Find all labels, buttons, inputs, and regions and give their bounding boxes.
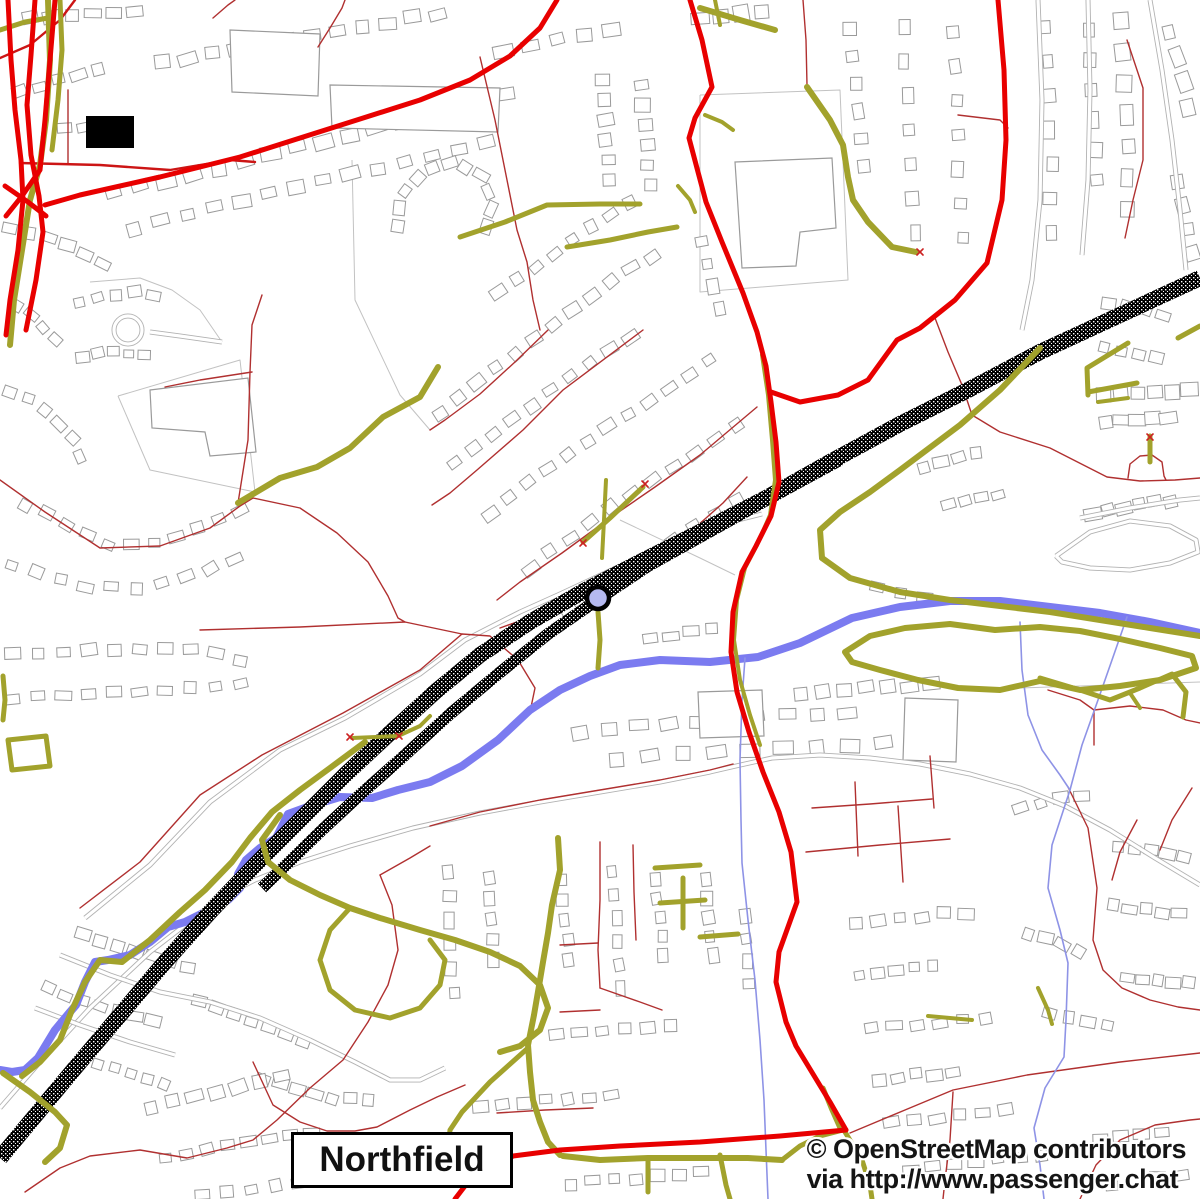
building — [145, 290, 161, 302]
building — [1159, 411, 1178, 425]
building — [286, 179, 305, 196]
building — [1182, 976, 1196, 989]
building — [1043, 55, 1053, 69]
building — [598, 93, 611, 107]
building — [608, 889, 618, 901]
building — [1101, 1020, 1114, 1032]
building — [945, 1067, 961, 1078]
building — [110, 290, 122, 302]
building — [391, 219, 405, 233]
building — [629, 719, 649, 731]
building — [126, 222, 142, 238]
building — [902, 87, 914, 103]
building — [642, 633, 658, 644]
building — [954, 198, 966, 209]
building — [1154, 907, 1170, 920]
building — [1043, 88, 1056, 103]
building — [629, 1174, 643, 1186]
building — [108, 644, 122, 656]
building — [220, 1185, 234, 1198]
building — [138, 350, 151, 360]
building — [141, 1073, 154, 1086]
building — [244, 1184, 258, 1195]
building — [403, 9, 421, 24]
building — [154, 54, 171, 69]
building — [701, 910, 715, 925]
building — [890, 1072, 905, 1084]
building — [974, 491, 989, 502]
building — [449, 987, 460, 998]
building — [928, 960, 938, 971]
building — [1128, 414, 1145, 425]
building — [81, 689, 96, 700]
building — [106, 686, 122, 697]
building — [886, 1021, 903, 1030]
attribution-line2: via http://www.passenger.chat — [807, 1164, 1186, 1194]
building — [183, 644, 198, 655]
building — [1074, 791, 1090, 802]
building — [1113, 415, 1131, 425]
building — [1063, 1011, 1074, 1025]
building — [814, 684, 830, 700]
building — [1107, 898, 1119, 911]
building — [672, 1169, 686, 1181]
building — [603, 174, 616, 186]
building — [1121, 904, 1138, 915]
map-attribution: © OpenStreetMap contributors via http://… — [807, 1134, 1186, 1194]
building — [106, 7, 122, 18]
building — [909, 962, 920, 971]
building — [1120, 104, 1134, 125]
building — [601, 22, 621, 38]
building — [1113, 12, 1129, 30]
building — [958, 908, 975, 920]
building — [693, 1166, 709, 1176]
building — [598, 133, 612, 147]
building — [640, 748, 660, 763]
building — [905, 191, 919, 206]
building — [975, 1108, 990, 1118]
building — [634, 98, 650, 112]
building — [837, 707, 857, 720]
building — [233, 655, 247, 668]
building — [641, 160, 654, 170]
building — [658, 930, 667, 942]
building — [442, 865, 454, 880]
building — [1090, 174, 1103, 186]
building — [613, 958, 625, 972]
building — [55, 573, 68, 585]
building — [1098, 341, 1110, 353]
building — [951, 95, 962, 107]
building — [565, 1180, 576, 1191]
building — [662, 631, 680, 641]
building — [1136, 975, 1150, 985]
building — [4, 647, 21, 659]
building — [595, 74, 609, 86]
building — [905, 158, 917, 171]
building — [779, 708, 796, 719]
building — [84, 9, 101, 18]
building — [612, 910, 622, 925]
building — [484, 891, 495, 906]
building — [370, 163, 386, 176]
building — [706, 623, 718, 634]
building — [979, 1012, 993, 1025]
building — [393, 200, 406, 216]
building-large — [903, 698, 958, 762]
building — [539, 1094, 552, 1104]
building — [2, 222, 18, 235]
building — [997, 1103, 1013, 1117]
building — [132, 644, 147, 655]
building — [773, 741, 794, 755]
building — [131, 687, 148, 698]
building — [123, 539, 139, 550]
building — [1165, 385, 1180, 400]
building — [451, 143, 468, 156]
building — [1120, 973, 1135, 984]
building — [597, 112, 615, 127]
building — [32, 648, 43, 659]
building — [444, 912, 454, 929]
building — [91, 62, 105, 76]
building — [1140, 902, 1152, 914]
building — [640, 139, 655, 152]
building — [356, 20, 369, 34]
building — [843, 22, 857, 35]
building — [888, 965, 904, 976]
building — [707, 947, 719, 963]
building — [607, 866, 617, 878]
building — [951, 161, 964, 178]
building — [852, 103, 865, 120]
building — [124, 350, 134, 358]
building — [157, 686, 172, 695]
building — [1147, 385, 1163, 398]
building — [849, 917, 862, 929]
building — [104, 581, 119, 591]
building — [754, 5, 769, 19]
building — [340, 128, 360, 145]
building — [1121, 169, 1133, 187]
building — [1122, 139, 1135, 154]
building — [80, 642, 98, 656]
building — [970, 447, 982, 460]
building — [613, 935, 622, 949]
building — [657, 948, 668, 962]
building — [269, 1178, 283, 1192]
building — [184, 681, 196, 693]
building — [571, 1027, 588, 1037]
building — [952, 129, 965, 141]
building — [946, 26, 959, 39]
building — [556, 894, 568, 906]
building — [1043, 192, 1057, 204]
building — [1152, 974, 1164, 987]
building — [706, 744, 727, 759]
building — [1144, 411, 1160, 425]
building — [917, 461, 930, 474]
building — [31, 691, 45, 701]
building — [232, 194, 252, 210]
building — [1079, 1015, 1096, 1028]
building — [562, 953, 574, 968]
building — [131, 583, 143, 595]
building — [900, 681, 919, 694]
building — [958, 232, 969, 243]
building — [498, 87, 515, 101]
building — [179, 1148, 194, 1160]
building — [180, 961, 196, 974]
building — [903, 124, 915, 136]
building — [638, 119, 653, 132]
building — [107, 346, 119, 356]
building — [1099, 415, 1113, 429]
building — [683, 626, 700, 637]
building — [702, 258, 713, 269]
building — [609, 1174, 620, 1184]
building-solid — [86, 116, 134, 148]
building — [706, 278, 720, 295]
building — [73, 297, 85, 308]
building — [854, 970, 865, 980]
building — [937, 907, 951, 919]
building — [1131, 387, 1145, 399]
building — [907, 1114, 922, 1126]
building — [487, 934, 499, 946]
building — [846, 50, 859, 62]
building — [701, 872, 712, 886]
building — [949, 58, 962, 74]
building — [695, 236, 708, 248]
building — [926, 1069, 944, 1082]
building — [1047, 157, 1059, 172]
building — [609, 753, 624, 768]
building — [561, 1092, 574, 1106]
building — [869, 914, 886, 928]
building — [650, 1169, 665, 1181]
building — [559, 913, 570, 927]
building — [954, 1109, 966, 1120]
building — [205, 46, 220, 59]
building — [55, 691, 72, 701]
building — [857, 680, 874, 694]
map-canvas[interactable]: Northfield © OpenStreetMap contributors … — [0, 0, 1200, 1199]
building — [840, 739, 860, 753]
attribution-line1: © OpenStreetMap contributors — [807, 1134, 1186, 1164]
building-large — [330, 85, 500, 132]
building — [601, 722, 617, 736]
building — [914, 912, 930, 924]
building — [157, 642, 173, 654]
building — [1180, 382, 1198, 396]
building-large — [230, 30, 320, 96]
building — [1165, 977, 1181, 989]
building — [851, 77, 862, 90]
building — [443, 890, 457, 901]
building — [126, 6, 143, 18]
building — [739, 908, 752, 924]
building — [582, 1093, 596, 1103]
building — [837, 684, 852, 698]
building — [144, 1101, 158, 1116]
place-label: Northfield — [291, 1132, 513, 1188]
building — [664, 1019, 677, 1031]
building — [602, 155, 615, 165]
building — [864, 1022, 878, 1034]
building — [899, 54, 909, 69]
building — [743, 954, 753, 969]
building — [882, 1115, 900, 1128]
building — [517, 1097, 532, 1110]
building — [57, 123, 72, 134]
building — [209, 681, 222, 692]
building — [585, 1175, 601, 1185]
building — [879, 679, 896, 694]
building — [1171, 908, 1187, 918]
station-marker[interactable] — [587, 587, 609, 609]
building — [794, 687, 808, 701]
building — [650, 872, 661, 886]
building — [362, 1094, 373, 1107]
building — [576, 28, 592, 42]
building — [5, 694, 20, 705]
building — [743, 979, 755, 989]
building — [1046, 225, 1056, 240]
building — [910, 1020, 925, 1032]
building — [645, 179, 657, 191]
building — [910, 1067, 923, 1079]
building — [899, 20, 910, 35]
building — [344, 1092, 357, 1103]
building — [655, 911, 666, 924]
building — [548, 1028, 564, 1040]
building — [495, 1098, 510, 1110]
building — [1101, 297, 1117, 311]
building — [857, 159, 870, 173]
building — [854, 133, 868, 145]
building — [810, 708, 824, 721]
building — [1116, 75, 1132, 93]
building — [874, 735, 893, 749]
building — [75, 351, 90, 363]
building — [676, 746, 690, 760]
building — [1043, 121, 1055, 139]
building — [379, 18, 397, 31]
building — [870, 967, 885, 979]
building — [483, 871, 495, 885]
building — [195, 1189, 210, 1199]
layer-marker — [587, 587, 609, 609]
building — [911, 225, 921, 241]
building — [127, 285, 142, 298]
place-label-text: Northfield — [319, 1140, 484, 1180]
building — [894, 913, 905, 923]
building — [165, 1093, 180, 1108]
building — [91, 346, 105, 359]
building — [571, 725, 589, 741]
building — [485, 912, 497, 926]
building — [57, 647, 71, 657]
building — [713, 301, 725, 316]
building — [595, 1026, 608, 1037]
building — [315, 174, 332, 186]
building — [472, 1100, 489, 1113]
building — [640, 1021, 656, 1034]
building — [872, 1074, 887, 1087]
map-render — [0, 0, 1200, 1199]
building — [619, 1023, 632, 1034]
building — [634, 79, 649, 90]
building — [180, 208, 195, 221]
